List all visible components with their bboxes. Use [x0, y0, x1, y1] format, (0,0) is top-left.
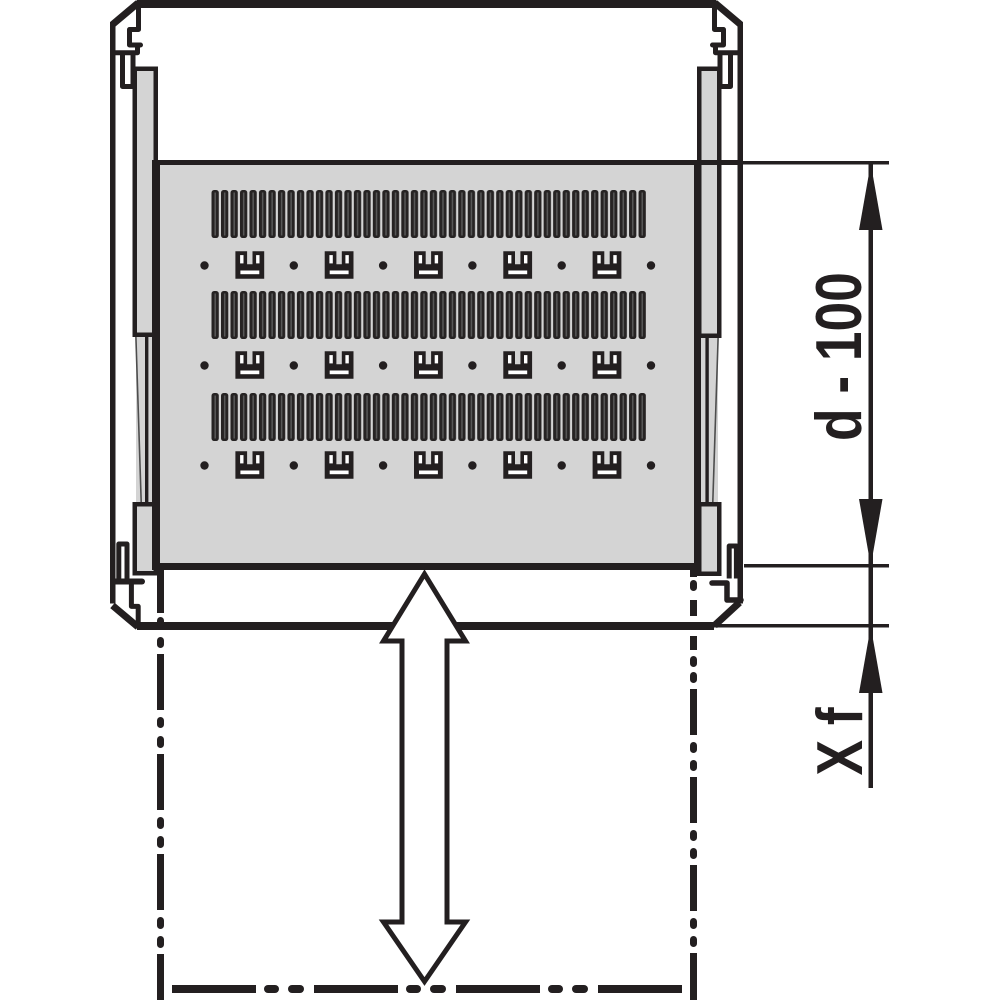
svg-text:d - 100: d - 100: [802, 272, 875, 441]
svg-text:X f: X f: [803, 707, 876, 775]
